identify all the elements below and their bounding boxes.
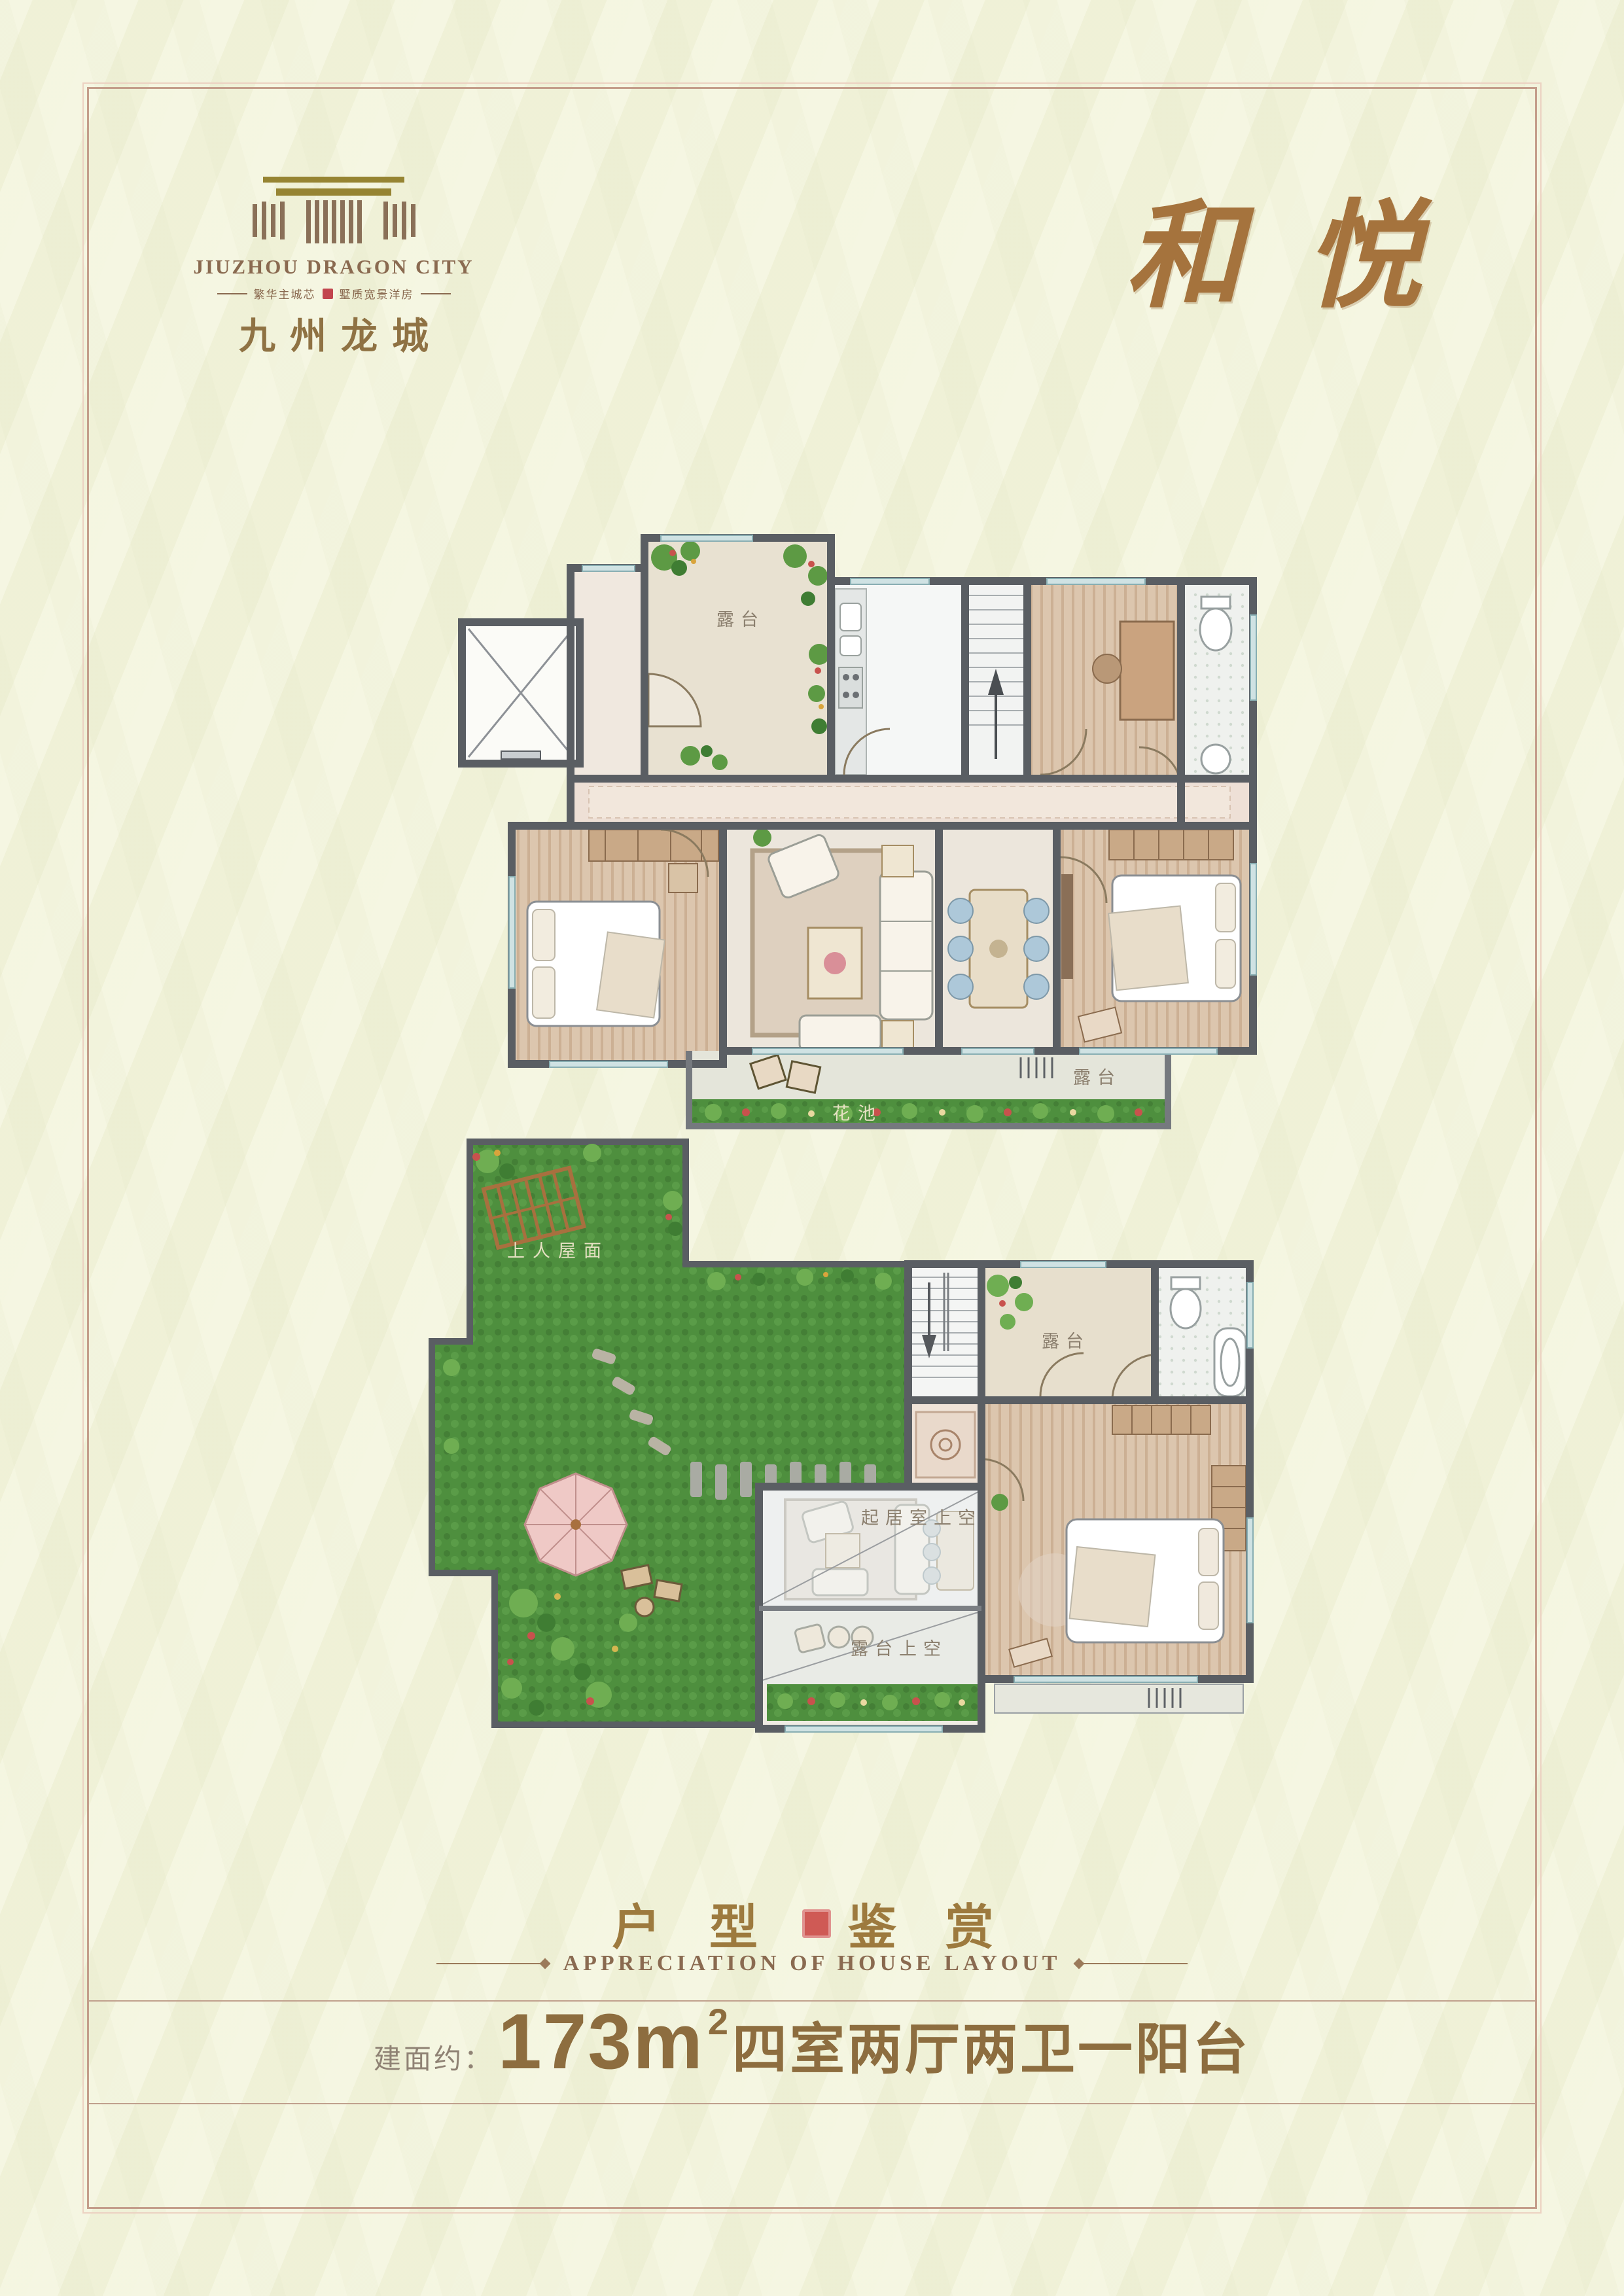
floor-plan-upper-drawing <box>458 533 1258 1130</box>
tagline-rule-left <box>217 293 247 294</box>
label-terrace-void: 露台上空 <box>851 1634 947 1660</box>
tagline-left: 繁华主城芯 <box>254 285 316 302</box>
subtitle-rule-left <box>436 1963 546 1964</box>
spec-row: 建面约： 173m 2 四室两厅两卫一阳台 <box>0 2002 1624 2103</box>
dining-furniture <box>948 890 1049 1008</box>
spec-band-top-rule <box>88 2000 1536 2002</box>
hall-runner-rug <box>589 786 1230 818</box>
elevator-shaft <box>462 622 580 764</box>
theme-title-calligraphy: 和悦 <box>1125 162 1466 330</box>
brand-logo: JIUZHOU DRAGON CITY 繁华主城芯 墅质宽景洋房 九州龙城 <box>190 175 478 360</box>
brand-name-en: JIUZHOU DRAGON CITY <box>190 255 478 279</box>
label-roof-garden: 上人屋面 <box>507 1237 609 1262</box>
tagline-seal-icon <box>323 289 333 299</box>
label-living-void: 起居室上空 <box>861 1504 982 1529</box>
garden-umbrella <box>525 1474 627 1576</box>
kitchen-fittings <box>835 589 866 775</box>
living-room-furniture <box>752 828 932 1051</box>
subtitle-rule-right <box>1078 1963 1188 1964</box>
brand-name-cn: 九州龙城 <box>190 307 478 360</box>
hall-rug-motif <box>916 1412 975 1477</box>
terrace-void-low-wall <box>759 1606 981 1611</box>
bedroom-ledge <box>995 1684 1243 1713</box>
title-seal-icon <box>802 1909 831 1938</box>
tagline-right: 墅质宽景洋房 <box>340 285 414 302</box>
section-subtitle-row: APPRECIATION OF HOUSE LAYOUT <box>0 1951 1624 1976</box>
spec-area-value: 173m <box>498 2002 704 2081</box>
spec-room-layout: 四室两厅两卫一阳台 <box>732 2023 1250 2078</box>
section-title-right: 鉴 赏 <box>848 1888 1012 1958</box>
spec-prefix: 建面约： <box>374 2037 494 2077</box>
floor-plan-lower-drawing <box>425 1112 1258 1786</box>
section-title-left: 户 型 <box>612 1888 777 1958</box>
tagline-rule-right <box>421 293 451 294</box>
spec-band-bottom-rule <box>88 2103 1536 2104</box>
label-upper-terrace-top: 露台 <box>716 605 765 631</box>
section-title: 户 型 鉴 赏 <box>0 1888 1624 1958</box>
brand-tagline: 繁华主城芯 墅质宽景洋房 <box>190 285 478 302</box>
label-upper-terrace-bottom: 露台 <box>1073 1063 1121 1089</box>
section-subtitle: APPRECIATION OF HOUSE LAYOUT <box>563 1951 1061 1976</box>
gate-columns-icon <box>229 175 438 249</box>
spec-area-exponent: 2 <box>708 2000 728 2043</box>
label-lower-terrace: 露台 <box>1042 1327 1090 1352</box>
